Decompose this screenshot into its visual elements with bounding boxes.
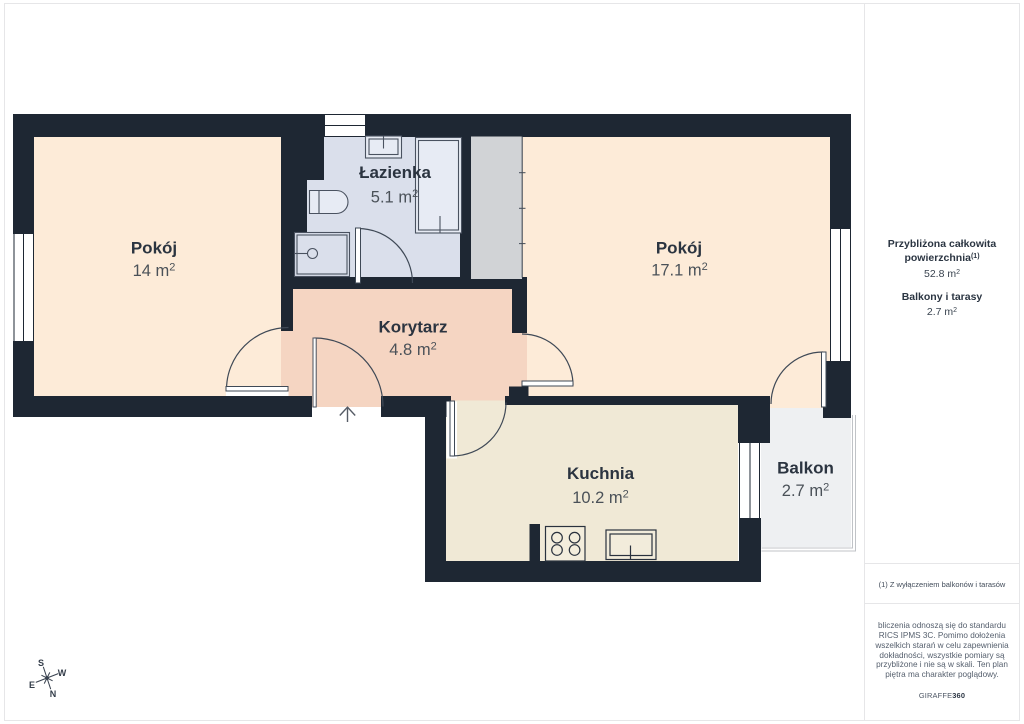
svg-text:Pokój: Pokój: [656, 239, 702, 258]
svg-text:powierzchnia(1): powierzchnia(1): [904, 252, 979, 264]
svg-text:Pokój: Pokój: [131, 239, 177, 258]
svg-text:14 m2: 14 m2: [133, 262, 176, 281]
svg-text:N: N: [50, 689, 57, 699]
svg-text:RICS IPMS 3C. Pomimo dołożenia: RICS IPMS 3C. Pomimo dołożenia: [879, 631, 1006, 640]
svg-text:Korytarz: Korytarz: [379, 318, 448, 337]
svg-text:(1) Z wyłączeniem balkonów i t: (1) Z wyłączeniem balkonów i tarasów: [879, 580, 1006, 589]
svg-text:bliczenia odnoszą się do stand: bliczenia odnoszą się do standardu: [878, 621, 1006, 630]
svg-text:17.1 m2: 17.1 m2: [651, 261, 708, 280]
svg-text:Kuchnia: Kuchnia: [567, 464, 635, 483]
svg-text:10.2 m2: 10.2 m2: [572, 489, 629, 508]
svg-text:2.7 m2: 2.7 m2: [782, 482, 829, 501]
svg-text:GIRAFFE360: GIRAFFE360: [919, 691, 965, 700]
svg-text:4.8 m2: 4.8 m2: [389, 341, 436, 360]
svg-text:wszelkich starań w celu zapewn: wszelkich starań w celu zapewnienia: [874, 641, 1009, 650]
svg-text:dokładności, wszystkie pomiary: dokładności, wszystkie pomiary są: [879, 651, 1005, 660]
svg-text:52.8 m2: 52.8 m2: [924, 268, 960, 280]
svg-text:S: S: [38, 658, 44, 668]
svg-text:5.1 m2: 5.1 m2: [371, 188, 418, 207]
svg-text:Balkon: Balkon: [777, 459, 834, 478]
svg-text:Balkony i tarasy: Balkony i tarasy: [902, 291, 983, 303]
svg-text:2.7 m2: 2.7 m2: [927, 306, 957, 318]
svg-text:W: W: [58, 668, 67, 678]
svg-text:Przybliżona całkowita: Przybliżona całkowita: [888, 238, 997, 250]
svg-text:Łazienka: Łazienka: [359, 163, 431, 182]
svg-text:przybliżone i nie są w skali.: przybliżone i nie są w skali. Ten plan: [876, 660, 1008, 669]
svg-text:piętra ma charakter poglądowy.: piętra ma charakter poglądowy.: [885, 670, 999, 679]
svg-text:E: E: [29, 680, 35, 690]
